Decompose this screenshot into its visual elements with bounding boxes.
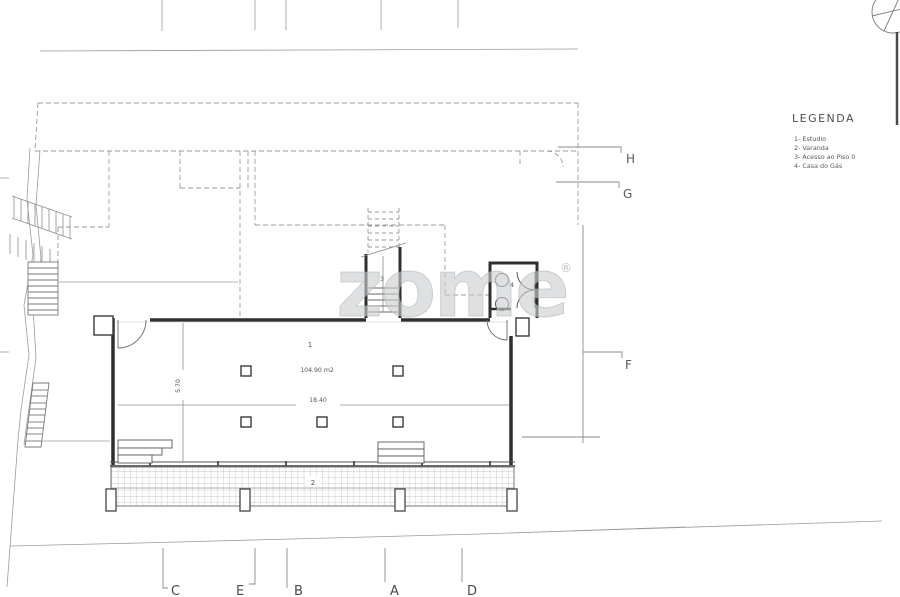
legend: LEGENDA 1- Estudio 2- Varanda 3- Acesso … bbox=[792, 112, 855, 170]
grid-letter-h: H bbox=[626, 152, 635, 166]
terrace bbox=[106, 467, 517, 511]
watermark: zome bbox=[336, 242, 567, 335]
dim-depth-label: 5.70 bbox=[175, 379, 182, 393]
interior-steps-left bbox=[118, 440, 172, 463]
legend-item-1: 1- Estudio bbox=[794, 135, 826, 143]
grid-letter-f: F bbox=[625, 358, 632, 372]
floor-plan-drawing: H G F C E B A D bbox=[0, 0, 900, 597]
room-area-label: 104.90 m2 bbox=[300, 367, 334, 374]
dim-width-label: 18.40 bbox=[309, 397, 327, 404]
grid-callouts-bottom bbox=[163, 548, 462, 588]
grid-letter-b: B bbox=[294, 584, 303, 597]
legend-item-3: 3- Acesso ao Piso 0 bbox=[794, 153, 855, 161]
north-symbol bbox=[872, 0, 900, 33]
floor-plan-sheet: H G F C E B A D bbox=[0, 0, 900, 597]
grid-letter-a: A bbox=[390, 584, 399, 597]
interior-steps-right bbox=[378, 442, 424, 463]
grid-letter-g: G bbox=[623, 187, 632, 201]
watermark-reg-icon: ® bbox=[560, 261, 572, 275]
grid-stubs-top bbox=[162, 0, 458, 31]
legend-item-2: 2- Varanda bbox=[794, 144, 829, 152]
grid-letter-e: E bbox=[236, 584, 244, 597]
room-label-varanda: 2 bbox=[311, 479, 315, 487]
exterior-stair-mid bbox=[28, 262, 238, 315]
window-wall bbox=[110, 461, 515, 467]
grid-letter-d: D bbox=[467, 584, 477, 597]
legend-title: LEGENDA bbox=[792, 112, 855, 125]
legend-item-4: 4- Casa do Gás bbox=[794, 162, 843, 170]
room-label-estudio: 1 bbox=[308, 341, 312, 349]
grid-letter-c: C bbox=[171, 584, 180, 597]
exterior-stair-lower bbox=[25, 383, 110, 447]
